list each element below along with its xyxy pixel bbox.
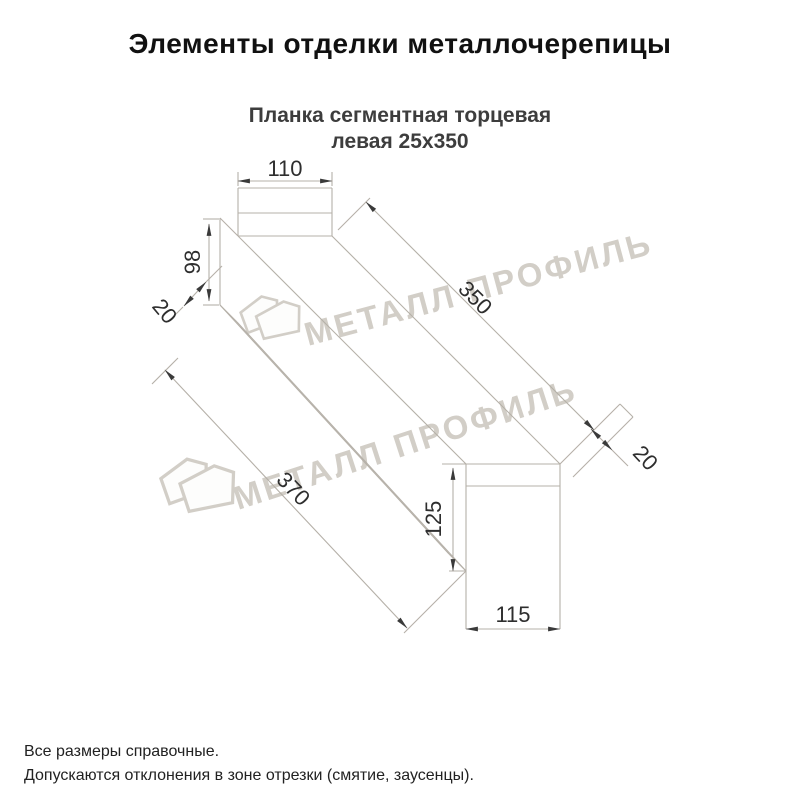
footer-note-2: Допускаются отклонения в зоне отрезки (с… (24, 764, 764, 788)
dimension-labels: 110 98 20 350 370 125 115 20 (147, 156, 663, 627)
dim-98-label: 98 (180, 250, 205, 274)
technical-drawing: МЕТАЛЛ ПРОФИЛЬ МЕТАЛЛ ПРОФИЛЬ (0, 0, 800, 800)
metall-profil-logo-icon (159, 453, 238, 515)
dim-110-label: 110 (267, 156, 302, 181)
dim-20-right-label: 20 (628, 440, 663, 475)
dim-20-left-label: 20 (147, 294, 182, 329)
watermark-2: МЕТАЛЛ ПРОФИЛЬ (159, 371, 582, 517)
page: Элементы отделки металлочерепицы Планка … (0, 0, 800, 800)
watermark-1: МЕТАЛЛ ПРОФИЛЬ (239, 224, 657, 353)
dim-115-label: 115 (495, 602, 530, 627)
footer-note-1: Все размеры справочные. (24, 740, 764, 764)
footer-notes: Все размеры справочные. Допускаются откл… (24, 740, 764, 788)
dim-125-label: 125 (421, 501, 446, 538)
